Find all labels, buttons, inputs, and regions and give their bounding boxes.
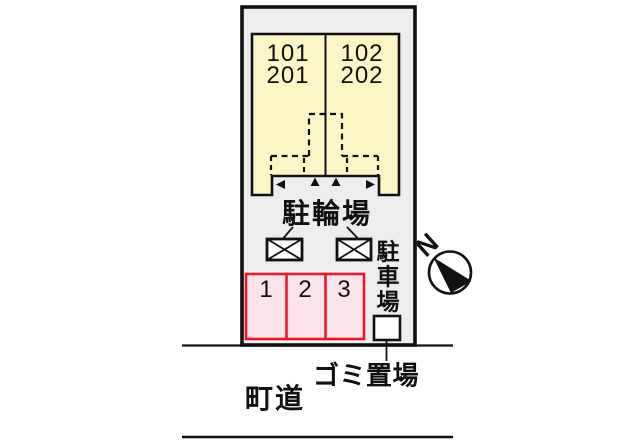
unit-right-label: 102 202 — [340, 43, 383, 87]
bicycle-rack-left-icon — [267, 239, 302, 260]
bicycle-rack-right-icon — [337, 239, 371, 260]
stall-number-3: 3 — [337, 276, 350, 304]
garbage-box-icon — [374, 316, 400, 340]
unit-202: 202 — [340, 65, 383, 87]
garbage-area-label: ゴミ置場 — [313, 356, 419, 393]
stall-number-2: 2 — [298, 276, 311, 304]
bicycle-parking-label: 駐輪場 — [282, 192, 372, 232]
car-parking-label: 駐車場 — [369, 240, 403, 315]
compass: N — [410, 227, 472, 293]
unit-left-label: 101 201 — [266, 43, 309, 87]
road-label: 町道 — [245, 377, 305, 417]
unit-201: 201 — [266, 65, 309, 87]
site-plan: N 101 201 102 202 駐輪場 駐車場 ゴミ置場 町道 1 2 3 — [0, 0, 640, 448]
stall-number-1: 1 — [259, 276, 272, 304]
